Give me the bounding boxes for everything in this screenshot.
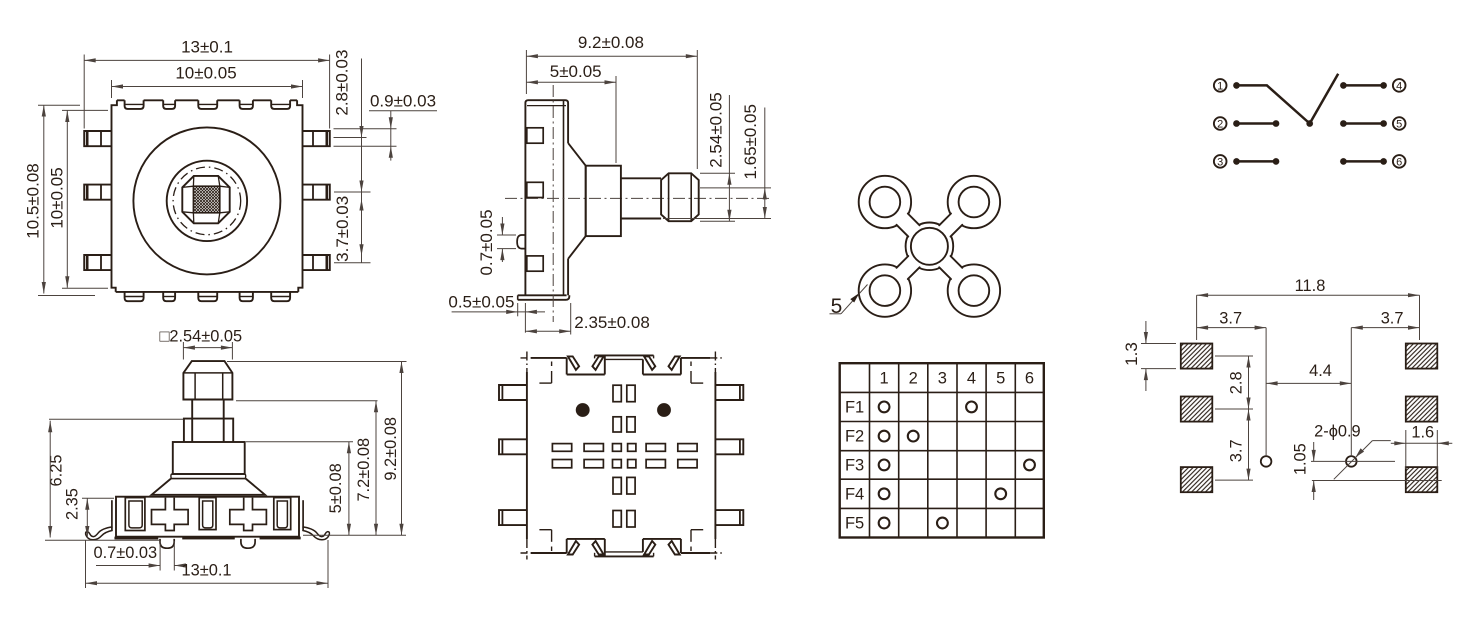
svg-text:2.54±0.05: 2.54±0.05: [707, 92, 726, 168]
svg-text:3: 3: [938, 370, 947, 388]
svg-text:9.2±0.08: 9.2±0.08: [578, 33, 644, 52]
svg-text:1.3: 1.3: [1122, 342, 1141, 366]
svg-text:0.5±0.05: 0.5±0.05: [448, 293, 514, 312]
svg-text:13±0.1: 13±0.1: [181, 562, 231, 580]
svg-text:0.7±0.05: 0.7±0.05: [477, 209, 496, 275]
svg-text:10±0.05: 10±0.05: [48, 167, 67, 228]
svg-text:2: 2: [1217, 118, 1223, 130]
svg-text:1.65±0.05: 1.65±0.05: [741, 104, 760, 180]
svg-text:6: 6: [1396, 156, 1402, 168]
svg-text:5±0.08: 5±0.08: [327, 463, 345, 513]
svg-text:0.9±0.03: 0.9±0.03: [370, 92, 436, 111]
svg-text:4.4: 4.4: [1309, 362, 1332, 380]
svg-text:3.7: 3.7: [1381, 310, 1404, 328]
svg-text:2.35±0.08: 2.35±0.08: [574, 313, 650, 332]
svg-text:F4: F4: [845, 485, 864, 503]
svg-text:3.7±0.03: 3.7±0.03: [333, 196, 352, 262]
svg-text:F5: F5: [845, 515, 864, 533]
svg-text:2-ϕ0.9: 2-ϕ0.9: [1314, 423, 1361, 441]
svg-text:11.8: 11.8: [1295, 277, 1326, 295]
svg-text:5: 5: [831, 295, 843, 318]
svg-text:0.7±0.03: 0.7±0.03: [93, 544, 157, 562]
svg-text:5: 5: [996, 370, 1005, 388]
svg-text:3.7: 3.7: [1227, 439, 1245, 462]
svg-text:10.5±0.08: 10.5±0.08: [24, 163, 43, 239]
svg-text:1.05: 1.05: [1292, 443, 1310, 475]
svg-text:7.2±0.08: 7.2±0.08: [355, 438, 373, 502]
svg-text:5: 5: [1396, 118, 1402, 130]
svg-text:9.2±0.08: 9.2±0.08: [382, 417, 400, 481]
svg-text:3: 3: [1217, 156, 1223, 168]
svg-text:1.6: 1.6: [1411, 424, 1434, 442]
svg-text:1: 1: [1217, 80, 1223, 92]
svg-text:6: 6: [1025, 370, 1034, 388]
svg-text:4: 4: [967, 370, 976, 388]
svg-text:F2: F2: [845, 428, 864, 446]
svg-text:1: 1: [880, 370, 889, 388]
svg-text:3.7: 3.7: [1219, 310, 1242, 328]
svg-text:□2.54±0.05: □2.54±0.05: [159, 328, 242, 346]
svg-text:F3: F3: [845, 456, 864, 474]
svg-text:2: 2: [909, 370, 918, 388]
svg-text:4: 4: [1396, 80, 1402, 92]
svg-text:2.8±0.03: 2.8±0.03: [333, 50, 352, 116]
svg-text:2.8: 2.8: [1227, 371, 1245, 394]
svg-text:10±0.05: 10±0.05: [175, 64, 236, 83]
svg-text:13±0.1: 13±0.1: [181, 38, 233, 57]
svg-text:5±0.05: 5±0.05: [550, 62, 602, 81]
svg-text:2.35: 2.35: [64, 488, 82, 520]
svg-text:F1: F1: [845, 398, 864, 416]
